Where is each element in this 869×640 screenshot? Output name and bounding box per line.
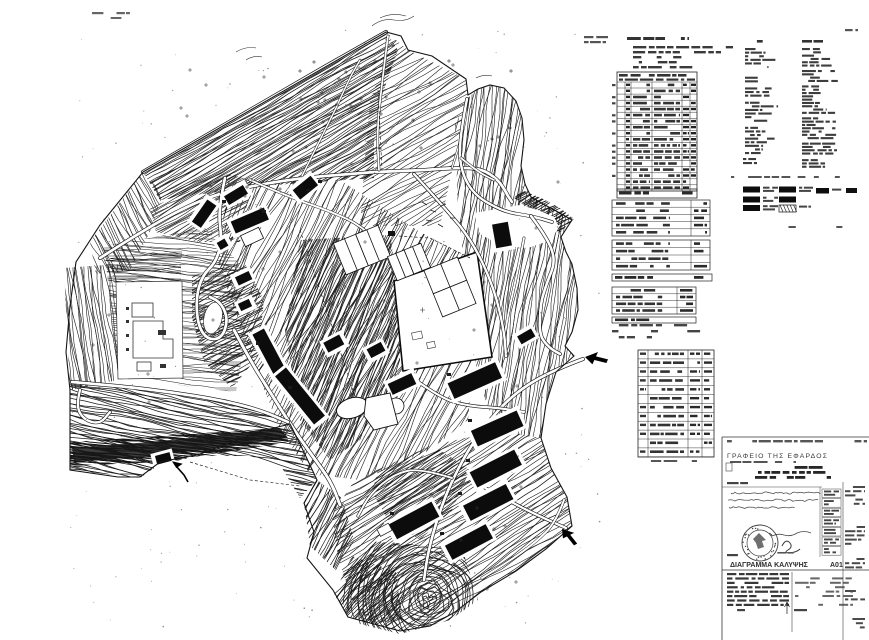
svg-text:ΔΙΑΓΡΑΜΜΑ ΚΑΛΥΨΗΣ: ΔΙΑΓΡΑΜΜΑ ΚΑΛΥΨΗΣ [730, 562, 808, 569]
svg-text:ΓΡΑΦΕΙΟ ΤΗΣ ΕΦΑΡΔΟΣ: ΓΡΑΦΕΙΟ ΤΗΣ ΕΦΑΡΔΟΣ [727, 453, 828, 460]
svg-text:A01: A01 [830, 562, 843, 569]
